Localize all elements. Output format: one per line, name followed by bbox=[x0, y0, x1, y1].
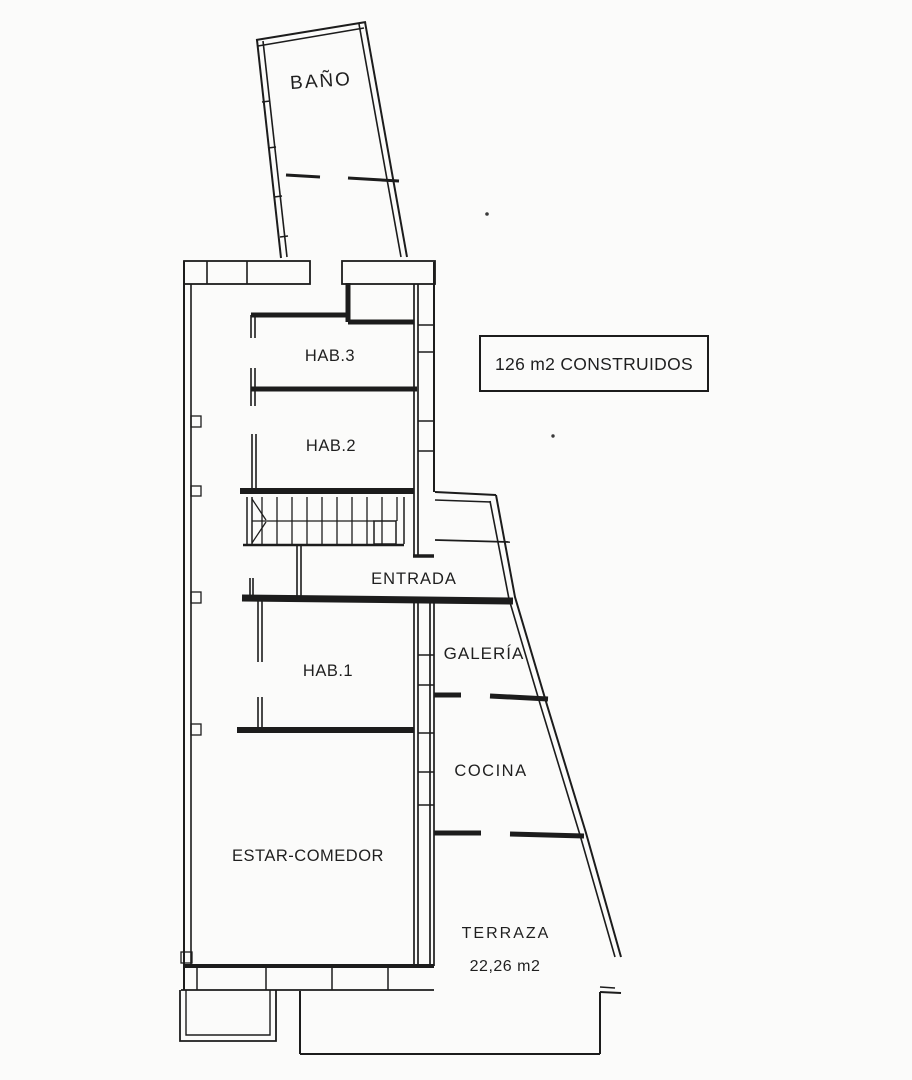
slanted-exterior-wall bbox=[435, 492, 621, 957]
room-label-cocina: COCINA bbox=[454, 762, 527, 780]
scanned-floor-plan-page: 126 m2 CONSTRUIDOS BAÑO HAB.3 HAB.2 ENTR… bbox=[0, 0, 912, 1080]
terraza-area-value: 22,26 m2 bbox=[470, 958, 541, 975]
room-label-entrada: ENTRADA bbox=[371, 570, 457, 588]
terraza-outline bbox=[300, 987, 621, 1054]
built-area-info-box: 126 m2 CONSTRUIDOS bbox=[480, 336, 708, 391]
scan-specks bbox=[485, 212, 555, 437]
east-wall-windows bbox=[413, 262, 434, 966]
room-label-bano: BAÑO bbox=[289, 68, 352, 94]
left-exterior-wall bbox=[181, 261, 201, 990]
hall-wall-stubs bbox=[250, 315, 301, 730]
staircase bbox=[243, 497, 404, 545]
room-label-estar-comedor: ESTAR-COMEDOR bbox=[232, 847, 384, 865]
room-label-hab3: HAB.3 bbox=[305, 347, 355, 365]
estar-bottom-window-wall bbox=[181, 966, 434, 990]
room-label-galeria: GALERÍA bbox=[444, 644, 525, 663]
info-box-label: 126 m2 CONSTRUIDOS bbox=[495, 354, 693, 374]
floor-plan-drawing: 126 m2 CONSTRUIDOS BAÑO HAB.3 HAB.2 ENTR… bbox=[0, 0, 912, 1080]
balcony bbox=[180, 990, 276, 1041]
room-label-hab1: HAB.1 bbox=[303, 662, 353, 680]
room-label-terraza: TERRAZA bbox=[462, 925, 551, 942]
room-label-hab2: HAB.2 bbox=[306, 437, 356, 455]
top-wall-bands bbox=[184, 261, 435, 284]
bano-room-walls bbox=[256, 22, 407, 258]
